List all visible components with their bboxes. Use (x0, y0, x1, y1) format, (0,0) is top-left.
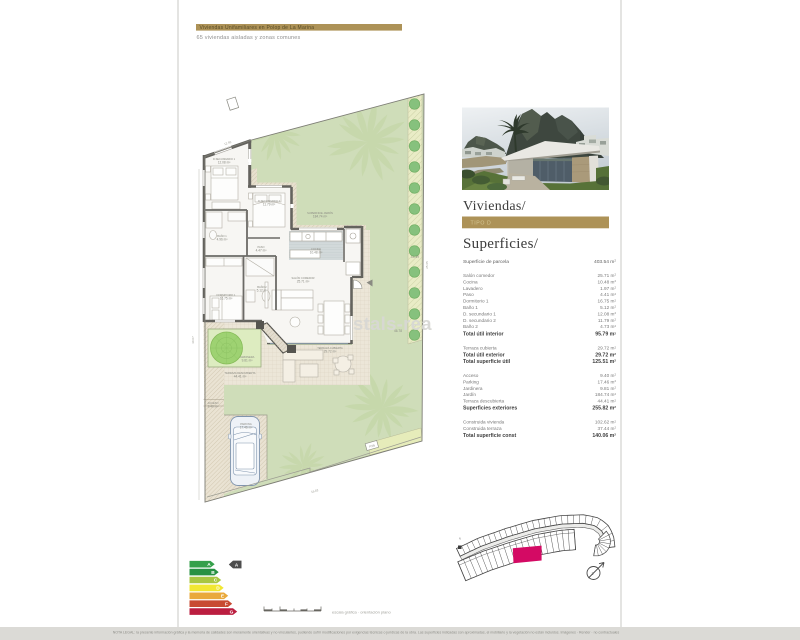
svg-text:Jardín: Jardín (463, 392, 476, 397)
svg-text:25.71 m2: 25.71 m2 (598, 273, 617, 278)
svg-text:44.41 m²: 44.41 m² (234, 374, 247, 378)
svg-text:Total superficie útil: Total superficie útil (463, 359, 511, 365)
svg-text:10.48 m2: 10.48 m2 (598, 279, 617, 284)
svg-text:N: N (459, 537, 461, 541)
svg-text:14.39: 14.39 (411, 255, 419, 259)
svg-text:9.81 m²: 9.81 m² (242, 358, 253, 362)
svg-text:17.46 m²: 17.46 m² (240, 425, 253, 429)
svg-text:44.41 m2: 44.41 m2 (598, 398, 617, 403)
svg-text:F: F (225, 601, 228, 607)
svg-text:Viviendas Unifamiliares en Pol: Viviendas Unifamiliares en Polop de La M… (200, 25, 315, 31)
svg-text:403.54 m2: 403.54 m2 (594, 259, 616, 265)
svg-text:102.62 m2: 102.62 m2 (595, 419, 617, 424)
svg-text:5.12 m2: 5.12 m2 (600, 305, 616, 310)
svg-text:C: C (214, 578, 218, 584)
svg-text:184.74 m²: 184.74 m² (313, 214, 327, 218)
svg-text:Jardinera: Jardinera (463, 386, 483, 391)
svg-text:Terraza cubierta: Terraza cubierta (463, 346, 497, 351)
svg-text:4.73 m2: 4.73 m2 (600, 324, 616, 329)
svg-text:Superficie de parcela: Superficie de parcela (463, 259, 509, 265)
svg-text:29.72 m2: 29.72 m2 (595, 352, 616, 358)
svg-text:escala gráfica · orientación p: escala gráfica · orientación plano (332, 610, 391, 615)
svg-text:37.44 m2: 37.44 m2 (598, 426, 617, 431)
svg-text:Construida terraza: Construida terraza (463, 426, 502, 431)
svg-text:4.96 m²: 4.96 m² (217, 237, 228, 241)
svg-text:29.72 m²: 29.72 m² (324, 349, 337, 353)
svg-text:125.51 m2: 125.51 m2 (592, 359, 616, 365)
svg-text:Viviendas/: Viviendas/ (463, 199, 526, 214)
svg-text:9.81 m2: 9.81 m2 (600, 386, 616, 391)
svg-text:Total útil exterior: Total útil exterior (463, 352, 505, 358)
svg-text:D. secundario 1: D. secundario 1 (463, 311, 496, 316)
svg-text:16.75 m²: 16.75 m² (220, 296, 233, 300)
svg-text:Cocina: Cocina (463, 279, 478, 284)
svg-text:G: G (230, 609, 234, 615)
svg-text:Construida vivienda: Construida vivienda (463, 420, 505, 425)
svg-text:Baño 1: Baño 1 (463, 305, 478, 310)
svg-text:11.79 m2: 11.79 m2 (598, 318, 617, 323)
svg-text:12.08 m²: 12.08 m² (218, 160, 231, 164)
svg-text:NOTA LEGAL: la presente inform: NOTA LEGAL: la presente información gráf… (113, 631, 620, 635)
svg-text:B: B (211, 570, 215, 576)
svg-text:Superficies exteriores: Superficies exteriores (463, 405, 517, 411)
svg-text:Parking: Parking (463, 379, 479, 384)
svg-text:D. secundario 2: D. secundario 2 (463, 318, 496, 323)
svg-text:25.71 m²: 25.71 m² (297, 279, 310, 283)
svg-text:Paso: Paso (463, 292, 474, 297)
svg-text:65 viviendas aisladas y zonas: 65 viviendas aisladas y zonas comunes (197, 35, 301, 41)
svg-text:95.79 m2: 95.79 m2 (595, 331, 616, 337)
svg-text:Acceso: Acceso (463, 373, 479, 378)
svg-text:9.40 m²: 9.40 m² (208, 404, 219, 408)
svg-text:4.47 m²: 4.47 m² (256, 248, 267, 252)
svg-text:Dormitorio 1: Dormitorio 1 (463, 299, 489, 304)
svg-text:29.72 m2: 29.72 m2 (598, 345, 617, 350)
svg-text:12.08 m2: 12.08 m2 (598, 311, 617, 316)
svg-text:TIPO D: TIPO D (471, 221, 492, 227)
svg-text:17.46 m2: 17.46 m2 (598, 379, 617, 384)
svg-text:Total superficie const: Total superficie const (463, 433, 517, 439)
svg-text:D: D (216, 586, 220, 592)
svg-text:1.97 m2: 1.97 m2 (600, 286, 616, 291)
svg-text:Superficies/: Superficies/ (463, 236, 539, 252)
svg-text:11.79 m²: 11.79 m² (263, 202, 275, 206)
svg-text:Baño 2: Baño 2 (463, 324, 478, 329)
svg-text:4.41 m2: 4.41 m2 (600, 292, 616, 297)
svg-text:255.82 m2: 255.82 m2 (592, 405, 616, 411)
svg-text:5.12 m²: 5.12 m² (257, 288, 268, 292)
svg-text:Terraza descubierta: Terraza descubierta (463, 399, 505, 404)
svg-text:184.74 m2: 184.74 m2 (595, 392, 617, 397)
svg-text:25.65: 25.65 (425, 261, 429, 269)
svg-text:stals-rea: stals-rea (353, 313, 432, 334)
svg-text:Salón comedor: Salón comedor (463, 273, 495, 278)
svg-text:30.07: 30.07 (191, 336, 195, 344)
svg-text:140.06 m2: 140.06 m2 (592, 433, 616, 439)
svg-text:A: A (207, 562, 211, 568)
svg-text:16.75 m2: 16.75 m2 (598, 298, 617, 303)
svg-text:10.48 m²: 10.48 m² (310, 250, 323, 254)
svg-text:Total útil interior: Total útil interior (463, 332, 504, 338)
svg-text:9.40 m2: 9.40 m2 (600, 373, 616, 378)
svg-text:Lavadero: Lavadero (463, 286, 483, 291)
